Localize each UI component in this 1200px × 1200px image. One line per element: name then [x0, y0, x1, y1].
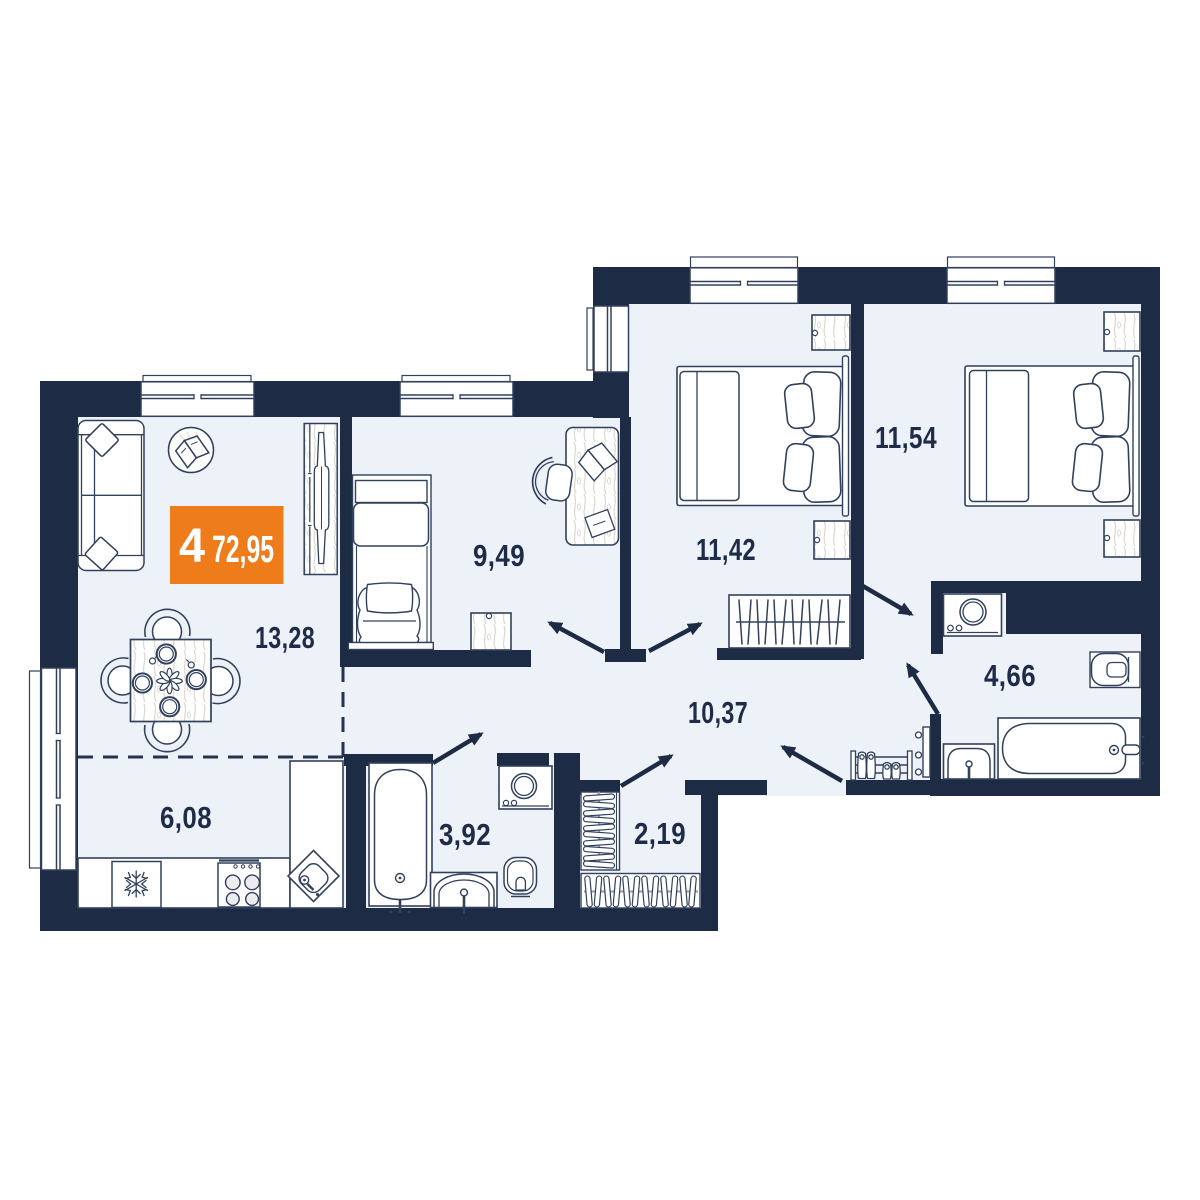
- svg-text:4: 4: [179, 520, 205, 573]
- svg-text:11,42: 11,42: [696, 532, 756, 567]
- svg-text:10,37: 10,37: [688, 695, 748, 730]
- svg-text:2,19: 2,19: [634, 816, 686, 851]
- svg-text:3,92: 3,92: [439, 817, 491, 852]
- svg-text:11,54: 11,54: [875, 420, 937, 455]
- svg-text:72,95: 72,95: [212, 529, 274, 571]
- svg-text:9,49: 9,49: [473, 538, 525, 573]
- svg-text:13,28: 13,28: [255, 620, 315, 655]
- svg-text:4,66: 4,66: [984, 658, 1036, 693]
- svg-text:6,08: 6,08: [160, 800, 212, 835]
